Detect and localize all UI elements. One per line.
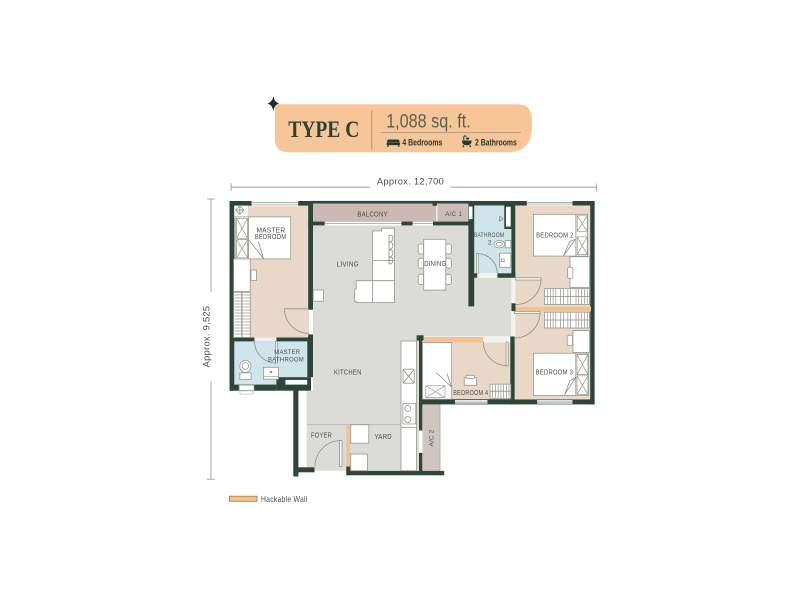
svg-text:BEDROOM: BEDROOM — [255, 232, 287, 241]
svg-text:2 Bathrooms: 2 Bathrooms — [475, 136, 517, 147]
svg-text:FOYER: FOYER — [311, 432, 332, 440]
svg-text:DINING: DINING — [424, 261, 446, 268]
svg-text:TYPE C: TYPE C — [288, 117, 359, 143]
svg-text:MASTER: MASTER — [274, 349, 300, 356]
svg-text:BATHROOM: BATHROOM — [268, 356, 304, 363]
svg-text:2: 2 — [488, 240, 492, 247]
svg-text:BEDROOM 2: BEDROOM 2 — [536, 232, 574, 239]
svg-text:BEDROOM 3: BEDROOM 3 — [536, 370, 574, 377]
svg-text:YARD: YARD — [374, 433, 392, 441]
svg-text:BALCONY: BALCONY — [357, 210, 387, 218]
svg-text:LIVING: LIVING — [337, 259, 359, 268]
svg-text:A/C 1: A/C 1 — [445, 211, 462, 218]
svg-text:A/C 2: A/C 2 — [429, 430, 436, 447]
svg-text:Approx. 9,525: Approx. 9,525 — [202, 306, 212, 368]
svg-text:BATHROOM: BATHROOM — [474, 232, 505, 239]
svg-text:1,088 sq. ft.: 1,088 sq. ft. — [386, 110, 471, 132]
svg-text:Hackable Wall: Hackable Wall — [261, 494, 308, 504]
svg-text:KITCHEN: KITCHEN — [334, 368, 362, 377]
svg-text:Approx. 12,700: Approx. 12,700 — [377, 177, 444, 187]
svg-text:BEDROOM 4: BEDROOM 4 — [453, 390, 488, 397]
svg-text:4 Bedrooms: 4 Bedrooms — [402, 136, 442, 147]
